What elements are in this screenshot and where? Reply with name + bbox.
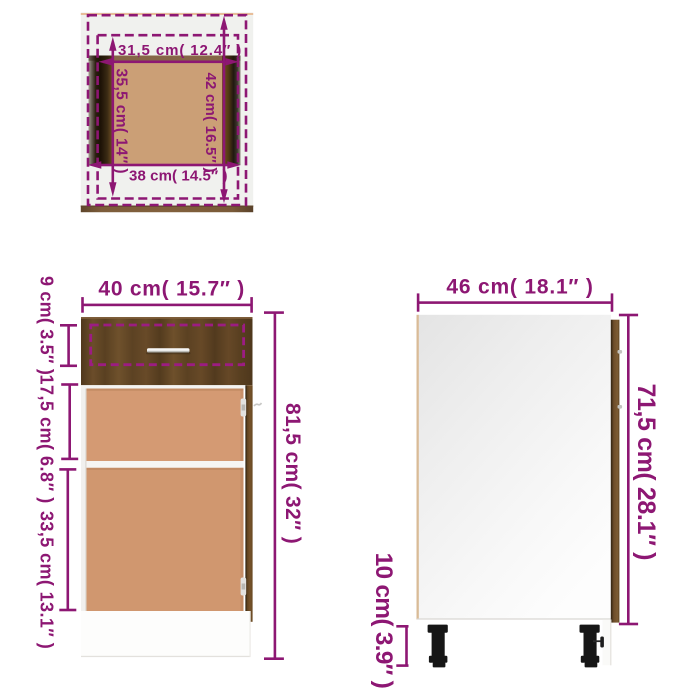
svg-text:71,5 cm( 28.1″ ): 71,5 cm( 28.1″ ) [632,384,660,561]
svg-text:46 cm( 18.1″ ): 46 cm( 18.1″ ) [446,275,593,298]
svg-text:33,5 cm( 13.1″ ): 33,5 cm( 13.1″ ) [37,511,57,649]
svg-text:17,5 cm( 6.8″ ): 17,5 cm( 6.8″ ) [37,375,57,504]
svg-text:40 cm( 15.7″ ): 40 cm( 15.7″ ) [98,277,245,300]
svg-text:35,5 cm( 14″ ): 35,5 cm( 14″ ) [113,69,130,174]
svg-text:31,5 cm( 12.4″ ): 31,5 cm( 12.4″ ) [118,42,242,59]
svg-text:38 cm( 14.5″ ): 38 cm( 14.5″ ) [129,168,228,185]
svg-text:42 cm( 16.5″ ): 42 cm( 16.5″ ) [202,73,219,173]
svg-text:9 cm( 3.5″ ): 9 cm( 3.5″ ) [37,276,57,375]
svg-text:81,5 cm( 32″ ): 81,5 cm( 32″ ) [281,403,304,544]
svg-text:10 cm( 3.9″ ): 10 cm( 3.9″ ) [370,553,397,688]
